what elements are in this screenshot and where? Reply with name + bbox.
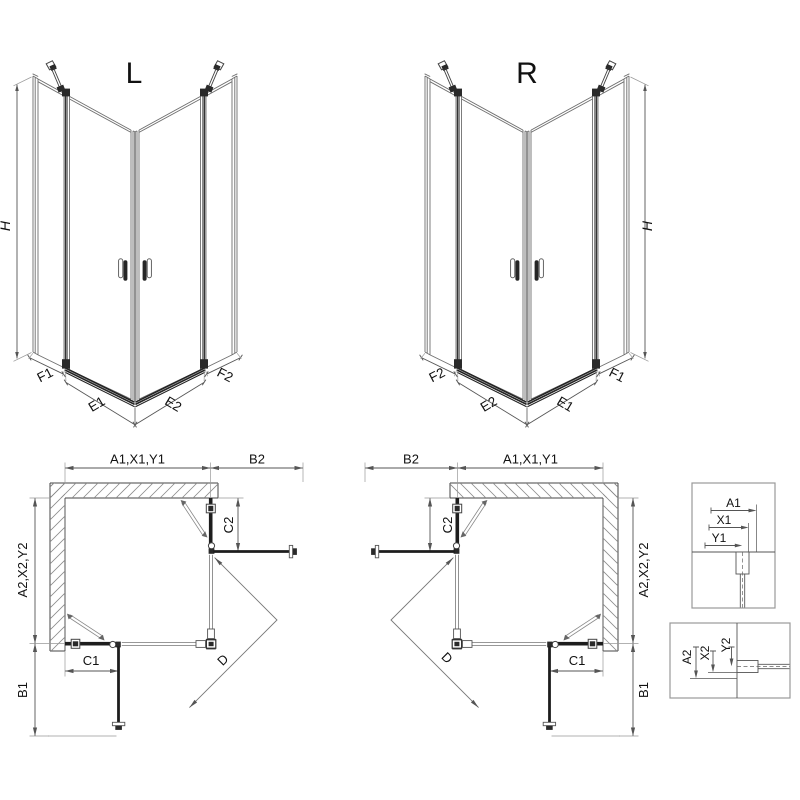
detail-label-a1: A1 <box>726 496 741 510</box>
detail-box-wall-profile-bottom: A2 X2 Y2 <box>670 623 790 698</box>
left-plan-drawing <box>30 463 304 737</box>
left-plan-d-label: D <box>214 651 231 668</box>
right-plan-b1-label: B1 <box>636 682 651 698</box>
diagram-page: { "l_view": { "title": "L", "height": "H… <box>0 0 800 800</box>
right-plan-c1-label: C1 <box>569 653 586 668</box>
left-plan-c1-label: C1 <box>83 653 100 668</box>
right-plan-drawing <box>365 463 639 737</box>
left-plan-a2x2y2-label: A2,X2,Y2 <box>15 543 30 598</box>
right-plan-c2-label: C2 <box>440 517 455 534</box>
detail-box-wall-profile-top: A1 X1 Y1 <box>692 483 775 608</box>
right-plan-b2-label: B2 <box>403 452 419 467</box>
shower-enclosure-technical-diagram: A1 X1 Y1 A2 X2 Y2 L H F1 E1 E2 F2 R H F2… <box>0 0 800 800</box>
l-f1-label: F1 <box>35 365 56 386</box>
right-plan-a1x1y1-label: A1,X1,Y1 <box>503 452 558 467</box>
r-f2-label: F2 <box>427 365 448 386</box>
detail-label-y2: Y2 <box>719 637 733 652</box>
detail-label-x1: X1 <box>717 513 732 527</box>
left-plan-c2-label: C2 <box>221 517 236 534</box>
l-view-title: L <box>126 57 143 90</box>
left-plan-a1x1y1-label: A1,X1,Y1 <box>110 452 165 467</box>
detail-label-a2: A2 <box>680 649 694 664</box>
r-f1-label: F1 <box>607 365 628 386</box>
detail-label-x2: X2 <box>698 645 712 660</box>
r-view-title: R <box>516 57 538 90</box>
left-plan-b2-label: B2 <box>249 452 265 467</box>
right-plan-d-label: D <box>439 649 456 666</box>
l-f2-label: F2 <box>215 365 236 386</box>
l-height-label: H <box>0 220 13 231</box>
r-height-label: H <box>639 220 655 231</box>
left-plan-b1-label: B1 <box>15 682 30 698</box>
detail-label-y1: Y1 <box>712 531 727 545</box>
right-plan-a2x2y2-label: A2,X2,Y2 <box>636 543 651 598</box>
